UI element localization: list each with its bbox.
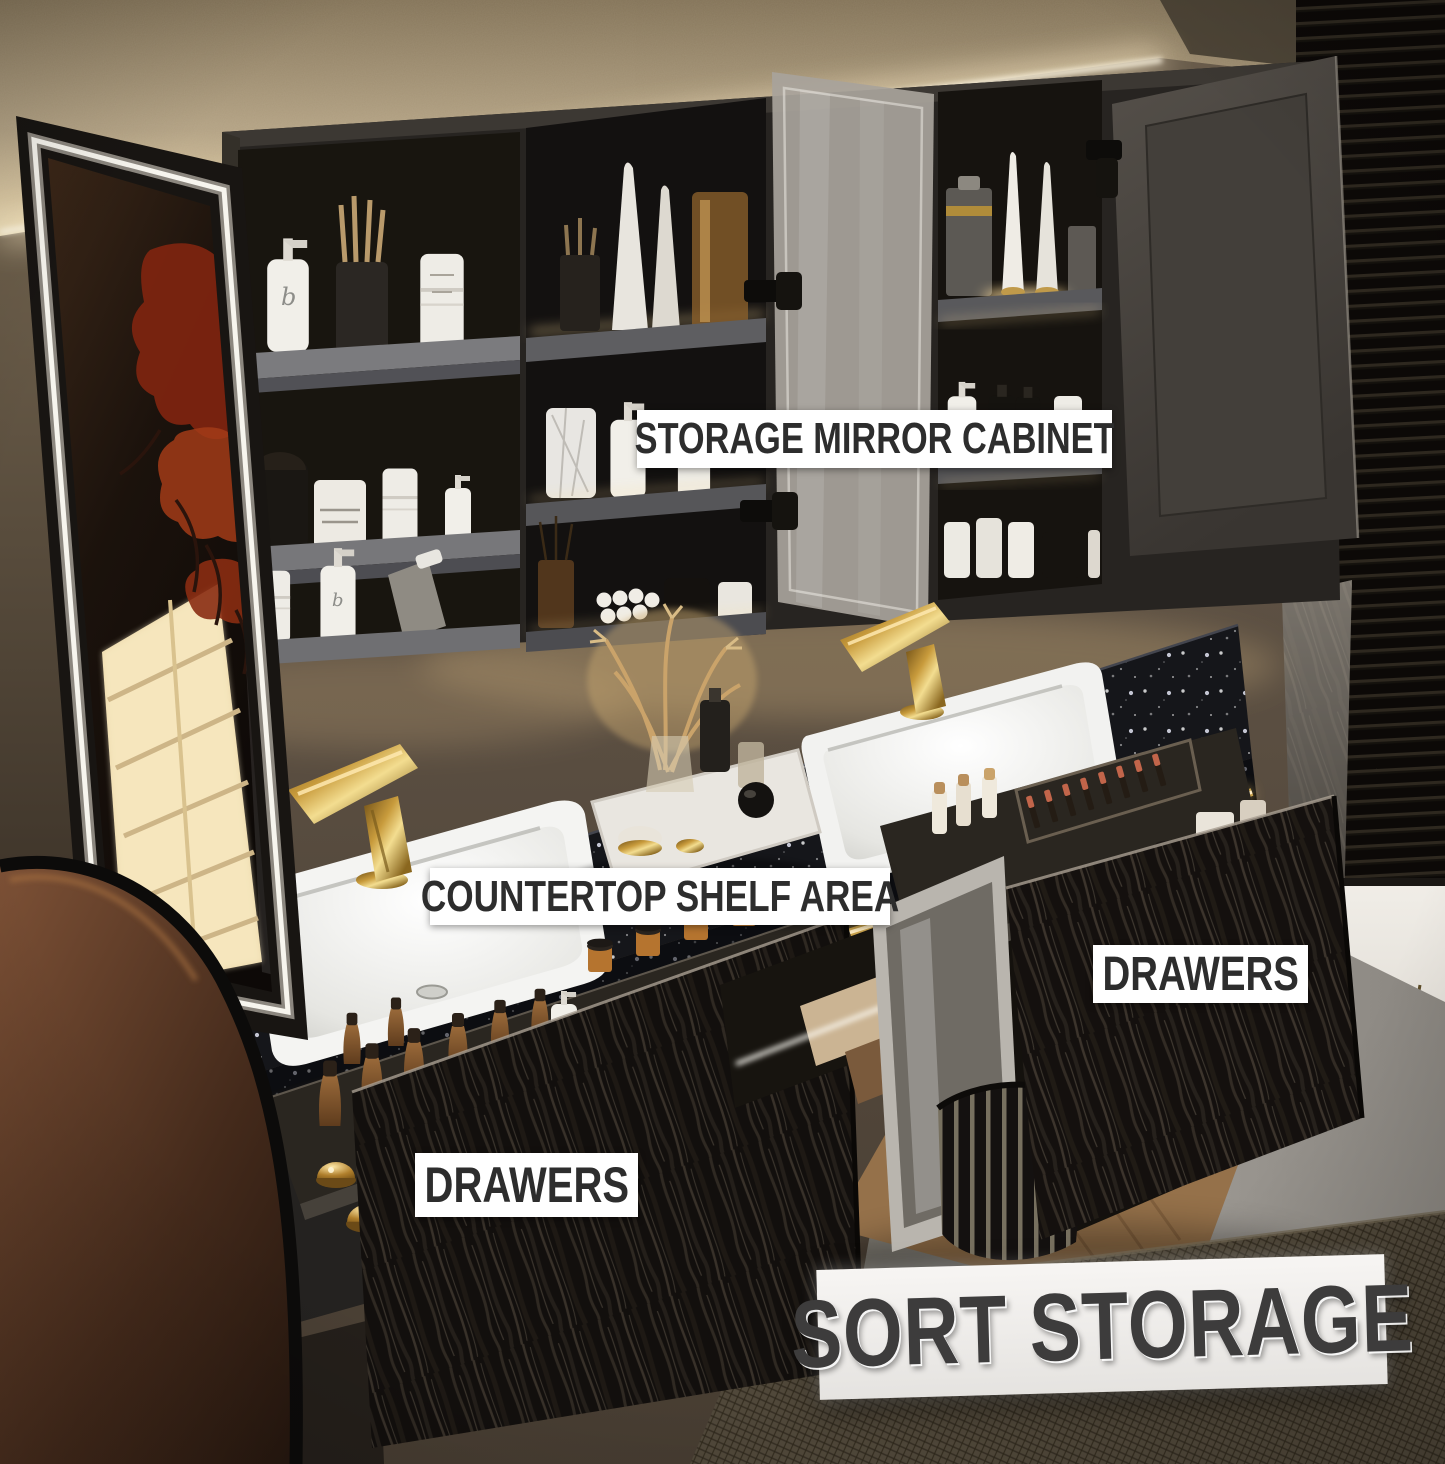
label-text: DRAWERS <box>424 1156 628 1214</box>
label-text: SORT STORAGE <box>789 1263 1414 1390</box>
label-storage-mirror-cabinet: STORAGE MIRROR CABINET <box>637 410 1112 468</box>
vignette <box>0 0 1445 1464</box>
label-countertop-shelf-area: COUNTERTOP SHELF AREA <box>430 868 890 925</box>
label-text: DRAWERS <box>1102 947 1298 1002</box>
label-text: STORAGE MIRROR CABINET <box>635 414 1115 464</box>
label-text: COUNTERTOP SHELF AREA <box>421 872 900 922</box>
label-drawers-left: DRAWERS <box>415 1153 638 1217</box>
label-drawers-right: DRAWERS <box>1093 945 1308 1003</box>
bathroom-scene-illustration: b b <box>0 0 1445 1464</box>
product-photo: b b <box>0 0 1445 1464</box>
label-sort-storage-banner: SORT STORAGE <box>816 1254 1387 1400</box>
